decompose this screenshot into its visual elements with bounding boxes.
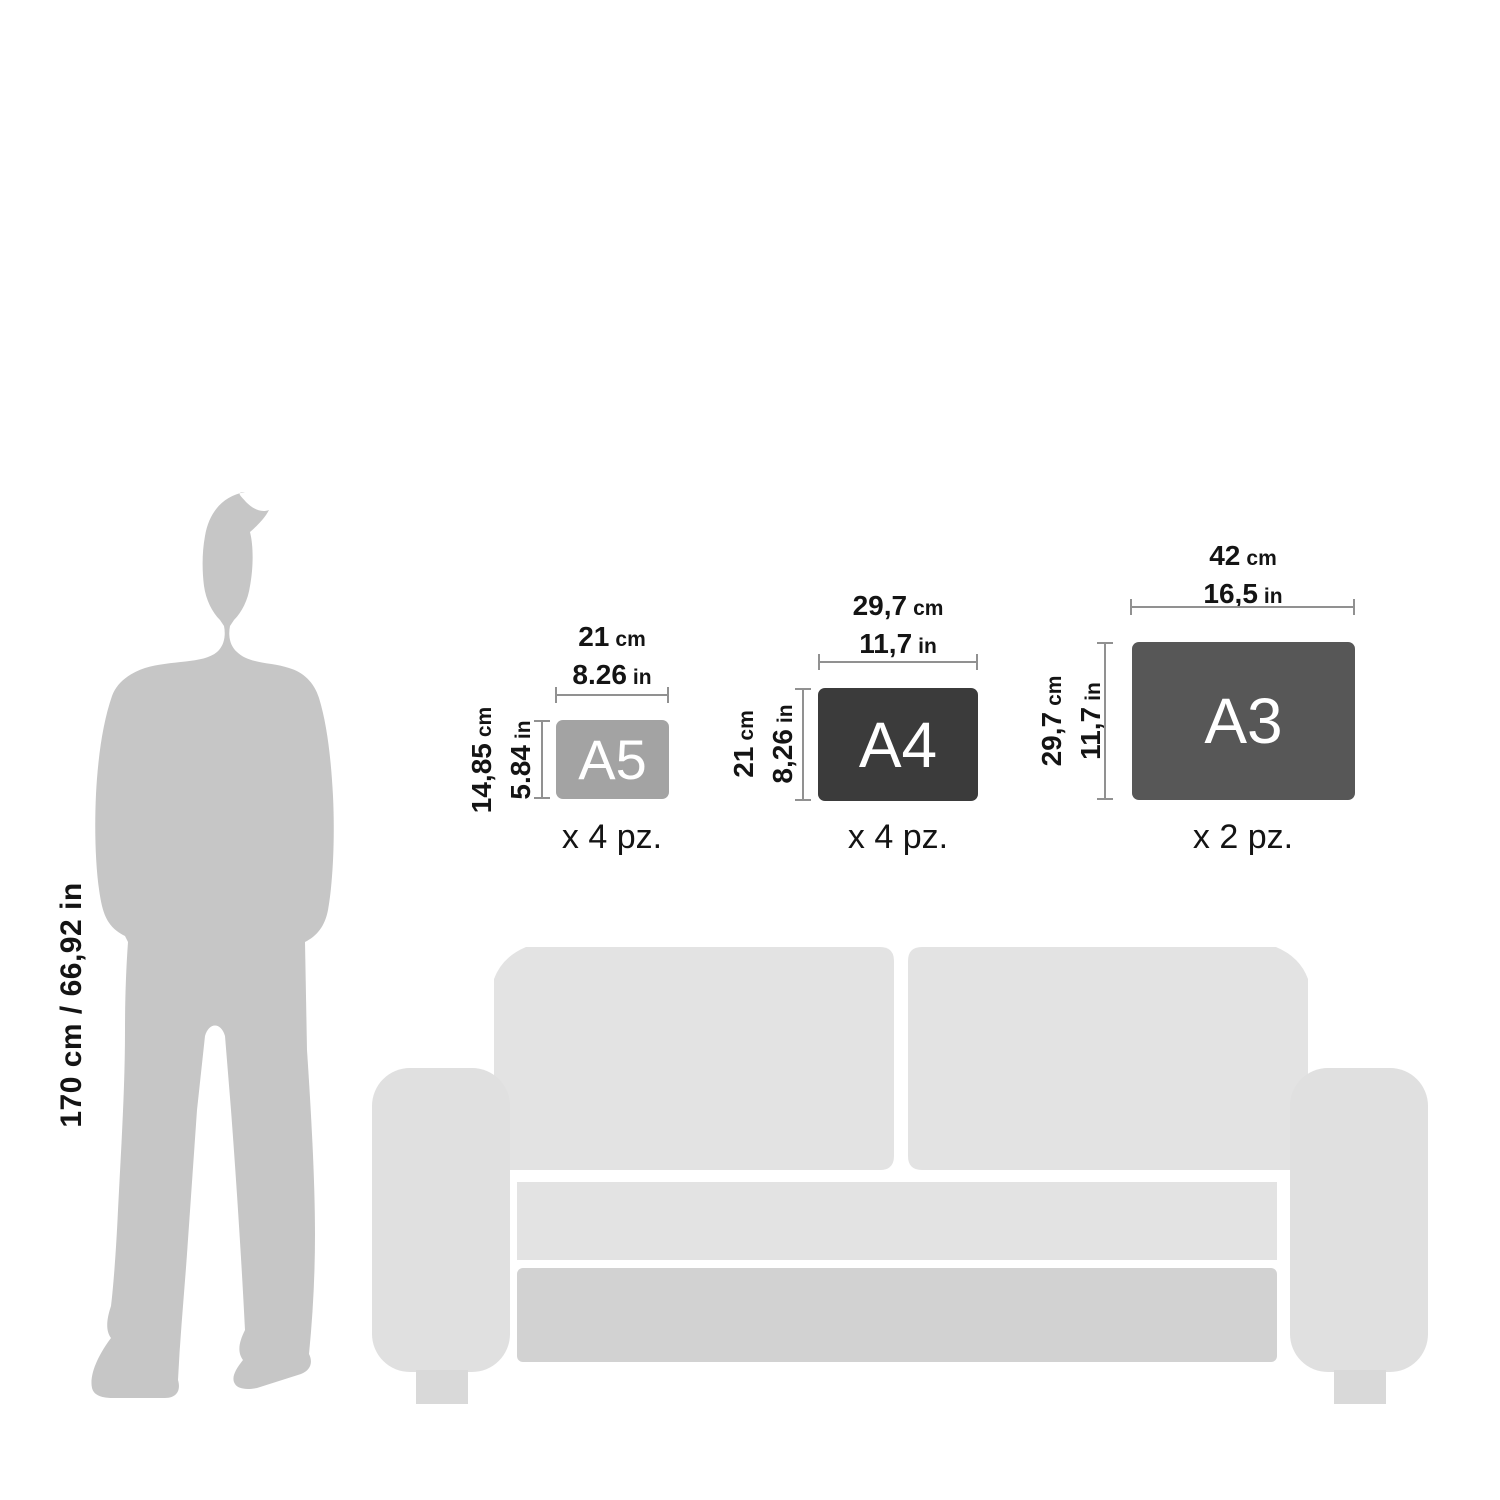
a4-width-dimension-line: [818, 661, 978, 663]
a5-height-dimension-line: [541, 720, 543, 799]
a5-width-in-value: 8.26: [572, 659, 627, 690]
sofa-foot-right: [1334, 1370, 1386, 1404]
a5-width-in-unit: in: [633, 666, 652, 689]
a4-height-label: 21cm 8,26in: [727, 704, 805, 783]
a5-quantity-label: x 4 pz.: [512, 818, 712, 857]
a3-height-dimension-line: [1104, 642, 1106, 800]
a4-height-cm-value: 21: [728, 747, 759, 778]
a3-height-cm-unit: cm: [1043, 676, 1066, 706]
a3-width-in-value: 16,5: [1203, 578, 1258, 609]
a3-width-cm-value: 42: [1209, 540, 1240, 571]
a3-width-label: 42cm 16,5in: [1143, 539, 1343, 615]
a5-height-label: 14,85cm 5.84in: [465, 707, 543, 813]
a4-width-label: 29,7cm 11,7in: [798, 589, 998, 665]
a3-width-cm-unit: cm: [1246, 547, 1276, 570]
a4-height-cm-unit: cm: [735, 710, 758, 740]
a3-paper-swatch: A3: [1132, 642, 1355, 800]
a4-height-in-value: 8,26: [767, 729, 798, 784]
a4-width-in-unit: in: [918, 635, 937, 658]
a4-height-dimension-line: [802, 688, 804, 801]
sofa-armrest-right: [1290, 1068, 1428, 1372]
sofa-base: [517, 1268, 1277, 1362]
sofa-back-cushion-right: [908, 947, 1308, 1170]
a4-width-in-value: 11,7: [859, 628, 912, 659]
a4-paper-label: A4: [859, 708, 937, 782]
a4-width-cm-value: 29,7: [853, 590, 908, 621]
a4-height-in-unit: in: [774, 704, 797, 723]
man-silhouette-icon: [85, 488, 375, 1403]
a3-width-in-unit: in: [1264, 585, 1283, 608]
a4-width-cm-unit: cm: [913, 597, 943, 620]
sofa-back-cushion-left: [494, 947, 894, 1170]
a4-paper-swatch: A4: [818, 688, 978, 801]
a5-width-cm-value: 21: [578, 621, 609, 652]
person-height-label: 170 cm / 66,92 in: [55, 882, 89, 1127]
sofa-silhouette-icon: [370, 940, 1432, 1410]
a3-height-label: 29,7cm 11,7in: [1035, 676, 1113, 767]
a5-paper-label: A5: [578, 727, 647, 792]
a3-paper-label: A3: [1204, 684, 1282, 758]
a3-height-cm-value: 29,7: [1036, 712, 1067, 767]
a5-width-label: 21cm 8.26in: [512, 620, 712, 696]
a5-height-cm-value: 14,85: [466, 743, 497, 813]
a4-quantity-label: x 4 pz.: [798, 818, 998, 857]
a5-height-in-unit: in: [512, 720, 535, 739]
a5-height-in-value: 5.84: [505, 745, 536, 800]
a5-height-cm-unit: cm: [473, 707, 496, 737]
a3-height-in-unit: in: [1082, 682, 1105, 701]
a5-width-dimension-line: [555, 694, 669, 696]
sofa-seat-cushion: [517, 1182, 1277, 1260]
a3-height-in-value: 11,7: [1075, 707, 1106, 760]
sofa-foot-left: [416, 1370, 468, 1404]
a3-quantity-label: x 2 pz.: [1143, 818, 1343, 857]
sofa-armrest-left: [372, 1068, 510, 1372]
a5-width-cm-unit: cm: [615, 628, 645, 651]
size-comparison-diagram: 170 cm / 66,92 in 21cm 8.26in 14,85cm 5.…: [0, 0, 1500, 1500]
a3-width-dimension-line: [1130, 606, 1355, 608]
a5-paper-swatch: A5: [556, 720, 669, 799]
